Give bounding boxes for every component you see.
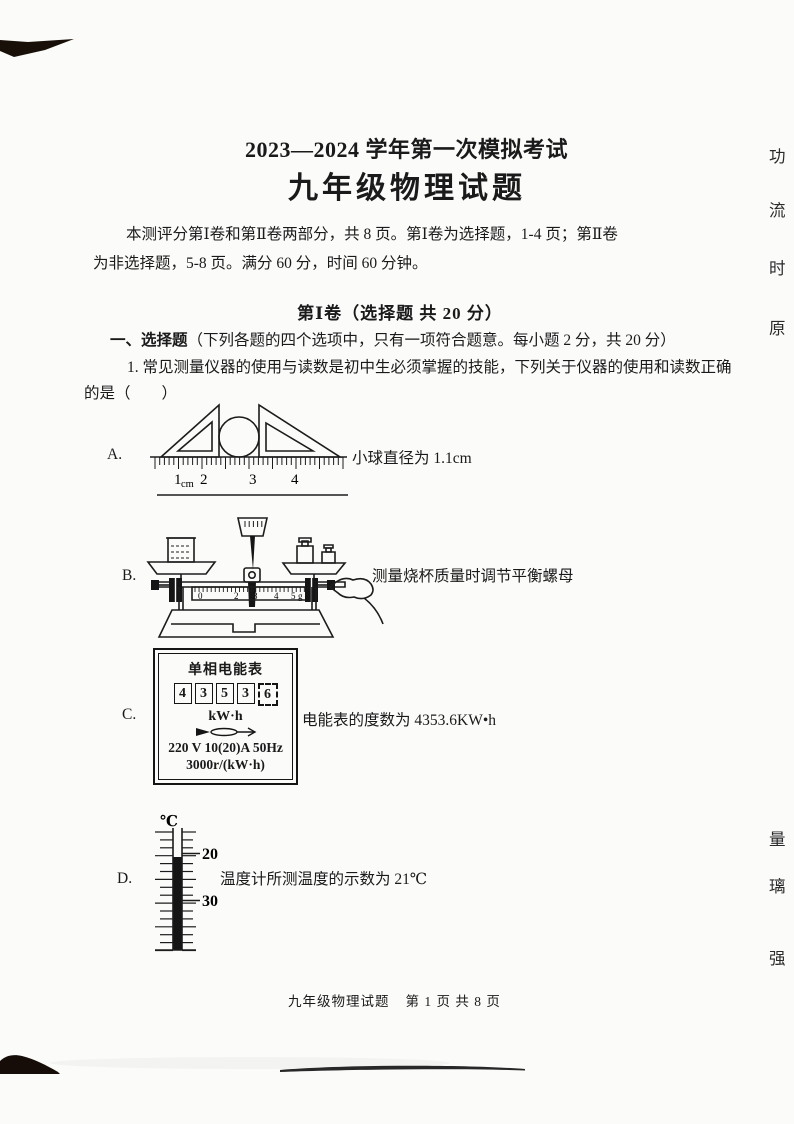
option-d-caption: 温度计所测温度的示数为 21℃ — [220, 867, 427, 889]
margin-char-6: 璃 — [769, 873, 786, 897]
option-a-caption: 小球直径为 1.1cm — [352, 446, 472, 468]
scale-unit: g — [298, 591, 303, 601]
left-end-nut — [151, 580, 159, 590]
margin-char-7: 强 — [769, 945, 786, 969]
energy-meter-panel: 单相电能表 4 3 5 3 6 kW·h 220 V 10(20)A 50Hz … — [158, 653, 293, 780]
right-pan — [283, 563, 345, 574]
meter-title: 单相电能表 — [188, 659, 263, 679]
question1-line-2: 的是（ ） — [84, 381, 177, 403]
weight-small-cap — [324, 545, 333, 548]
balance-dial — [238, 518, 267, 536]
option-c-caption: 电能表的度数为 4353.6KW•h — [302, 708, 496, 730]
weight-large — [297, 546, 313, 563]
left-triangle-hole — [178, 422, 212, 451]
meter-spec-2: 3000r/(kW·h) — [186, 756, 265, 773]
margin-char-5: 量 — [769, 826, 786, 850]
left-balance-nut — [169, 578, 182, 602]
scale-3: 3 — [253, 591, 258, 601]
exam-title: 2023—2024 学年第一次模拟考试 — [245, 132, 568, 164]
meter-arrow-icon — [194, 725, 258, 739]
scale-0: 0 — [198, 591, 203, 601]
beaker — [168, 538, 194, 562]
scan-artifact-bottom-left — [0, 1055, 60, 1074]
balance-scale-diagram: 0 2 3 4 5 g — [143, 510, 388, 642]
section1-heading: 第Ⅰ卷（选择题 共 20 分） — [90, 299, 710, 324]
ruler-number-2: 2 — [200, 472, 208, 488]
meter-spec-1: 220 V 10(20)A 50Hz — [168, 739, 283, 756]
margin-char-2: 流 — [769, 197, 786, 221]
option-a-label: A. — [107, 446, 122, 464]
rider-scale-plate — [192, 587, 307, 600]
weight-small-stem — [326, 548, 331, 552]
mercury-column — [174, 857, 182, 950]
ruler-number-4: 4 — [291, 472, 299, 488]
right-end-nut — [327, 580, 335, 590]
beam — [155, 582, 345, 587]
left-triangle — [161, 405, 219, 457]
margin-char-1: 功 — [769, 143, 786, 167]
scan-artifact-top-left — [0, 39, 74, 57]
meter-digit-4: 3 — [237, 683, 255, 704]
scale-4: 4 — [274, 591, 279, 601]
meter-digit-1: 4 — [174, 683, 192, 704]
balance-pointer — [250, 536, 255, 570]
meter-unit-label: kW·h — [208, 709, 242, 725]
section1-instruction-rest: （下列各题的四个选项中，只有一项符合题意。每小题 2 分，共 20 分） — [188, 332, 676, 349]
intro-line-2: 为非选择题，5-8 页。满分 60 分，时间 60 分钟。 — [93, 251, 428, 273]
ruler-number-1: 1 — [174, 472, 182, 488]
meter-digit-3: 5 — [216, 683, 234, 704]
option-d-label: D. — [117, 870, 132, 888]
hand-wrist — [364, 598, 383, 624]
margin-char-4: 原 — [769, 315, 786, 339]
intro-line-1: 本测评分第Ⅰ卷和第Ⅱ卷两部分，共 8 页。第Ⅰ卷为选择题，1-4 页；第Ⅱ卷 — [126, 222, 618, 244]
right-triangle — [259, 405, 340, 457]
footer-doc-name: 九年级物理试题 — [288, 990, 390, 1010]
margin-char-3: 时 — [769, 255, 786, 279]
base-columns — [179, 587, 316, 610]
thermometer-ticks — [155, 832, 196, 951]
hand — [330, 578, 373, 598]
dial-ticks — [245, 521, 262, 527]
weight-large-stem — [302, 541, 308, 546]
exam-subtitle: 九年级物理试题 — [288, 163, 526, 207]
scale-5: 5 — [291, 591, 296, 601]
thermometer-unit: ℃ — [160, 814, 178, 830]
right-triangle-hole — [266, 423, 313, 451]
ball — [219, 417, 259, 457]
base-notch — [171, 624, 320, 632]
energy-meter-diagram: 单相电能表 4 3 5 3 6 kW·h 220 V 10(20)A 50Hz … — [153, 648, 298, 785]
option-b-caption: 测量烧杯质量时调节平衡螺母 — [372, 564, 574, 586]
section1-instruction-lead: 一、选择题 — [110, 332, 188, 349]
scan-smudge-bottom — [50, 1057, 450, 1069]
scan-streak-bottom — [280, 1066, 525, 1072]
balance-base — [159, 610, 333, 637]
weight-small — [322, 552, 335, 563]
option-b-label: B. — [122, 567, 136, 585]
balance-pivot — [244, 568, 260, 582]
meter-digit-2: 3 — [195, 683, 213, 704]
right-balance-nut — [305, 578, 318, 602]
left-pan — [148, 562, 215, 574]
page-footer: 九年级物理试题 第 1 页 共 8 页 — [288, 990, 501, 1010]
thermometer-label-30: 30 — [202, 893, 218, 910]
question1-line-1: 1. 常见测量仪器的使用与读数是初中生必须掌握的技能，下列关于仪器的使用和读数正… — [127, 355, 732, 377]
beaker-hatch — [171, 546, 191, 558]
meter-digit-row: 4 3 5 3 6 — [174, 683, 278, 706]
ruler-unit: cm — [181, 479, 194, 490]
balance-pillar — [248, 582, 256, 607]
ruler-number-3: 3 — [249, 472, 257, 488]
exam-paper-scan: 功 流 时 原 量 璃 强 2023—2024 学年第一次模拟考试 九年级物理试… — [0, 0, 794, 1124]
meter-digit-5: 6 — [258, 683, 278, 706]
ruler-ticks — [155, 457, 343, 469]
thermometer-label-20: 20 — [202, 846, 218, 863]
footer-page-number: 第 1 页 共 8 页 — [406, 990, 501, 1010]
ruler-ball-diagram: 1 cm 2 3 4 — [145, 398, 360, 500]
section1-instruction: 一、选择题（下列各题的四个选项中，只有一项符合题意。每小题 2 分，共 20 分… — [110, 328, 676, 350]
option-c-label: C. — [122, 706, 136, 724]
weight-large-cap — [299, 538, 311, 542]
pivot-hole — [249, 572, 255, 578]
rider-scale-ticks — [195, 588, 304, 593]
scale-2: 2 — [234, 591, 239, 601]
